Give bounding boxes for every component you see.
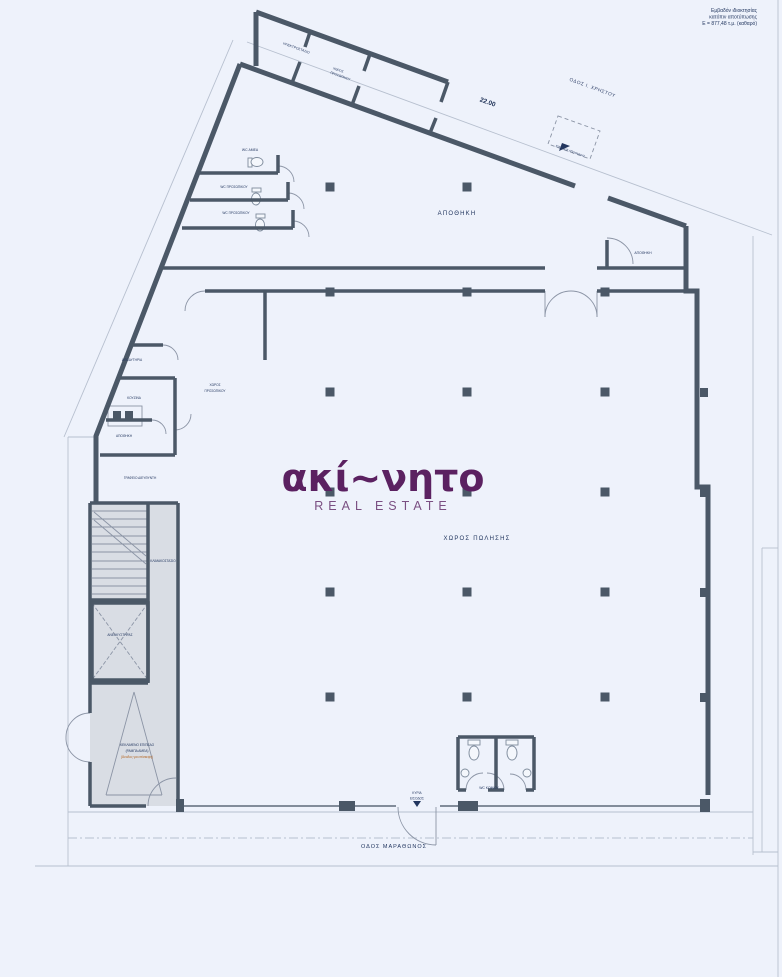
main-entrance-label-2: ΕΙΣΟΔΟΣ — [410, 797, 424, 801]
main-entrance-arrow — [413, 801, 421, 807]
structural-columns — [326, 183, 709, 703]
site-note-line2: κατόπιν αποτύπωσης — [709, 14, 757, 21]
room-label-staff-left-2: ΠΡΟΣΩΠΙΚΟΥ — [205, 389, 227, 393]
room-label-kitchen: ΚΟΥΖΙΝΑ — [127, 396, 142, 400]
room-label-staircase: ΚΛΙΜΑΚΟΣΤΑΣΙΟ — [150, 559, 176, 563]
room-label-wc-public: WC ΚΟΙΝΟΥ — [479, 786, 499, 790]
room-label-wc-staff-1: WC ΠΡΟΣΩΠΙΚΟΥ — [220, 185, 248, 189]
room-label-changing: ΑΠΟΔΥΤΗΡΙΑ — [122, 358, 143, 362]
room-label-wc-accessible: WC ΑΜΕΑ — [242, 148, 259, 152]
room-label-elevator: ΑΝΕΛΚΥΣΤΗΡΑΣ — [107, 633, 132, 637]
street-label-bottom: ΟΔΟΣ ΜΑΡΑΘΩΝΟΣ — [361, 844, 427, 850]
core-block-fill — [90, 503, 178, 806]
room-label-storage-top-right: ΑΠΟΘΗΚΗ — [634, 251, 652, 255]
room-label-staff-left-1: ΧΩΡΟΣ — [209, 383, 220, 387]
watermark-subtitle: REAL ESTATE — [314, 499, 451, 513]
site-note-line1: Εμβαδόν ιδιοκτησίας — [711, 7, 758, 14]
room-label-storage-left: ΑΠΟΘΗΚΗ — [116, 434, 133, 438]
walls-inner — [90, 32, 686, 806]
main-entrance-label-1: ΚΥΡΙΑ — [412, 791, 422, 795]
site-note-line3: Ε = 877,48 τ.μ. (καθαρό) — [702, 20, 757, 27]
warehouse-entrance-label: ΕΙΣΟΔΟΣ ΑΠΟΘΗΚΗΣ — [555, 144, 585, 158]
dimension-top-wall: 22.00 — [479, 97, 497, 109]
watermark-brand: ακί~νητο — [281, 456, 484, 500]
room-label-wc-staff-2: WC ΠΡΟΣΩΠΙΚΟΥ — [222, 211, 250, 215]
floor-plan-drawing: Εμβαδόν ιδιοκτησίας κατόπιν αποτύπωσης Ε… — [0, 0, 782, 977]
ramp-note-line1: ΚΕΚΛΙΜΕΝΟ ΕΠΙΠΕΔΟ — [120, 743, 155, 747]
room-label-warehouse: ΑΠΟΘΗΚΗ — [438, 211, 477, 217]
room-label-managers-office: ΓΡΑΦΕΙΟ ΔΙΕΥΘΥΝΤΗ — [124, 476, 157, 480]
walls-outer — [96, 12, 708, 795]
ramp-note-line3: (Άνοδος για επίσκεψη) — [121, 755, 153, 759]
ramp-note-line2: (ΡΑΜΠΑ ΑΜΕΑ) — [126, 749, 149, 753]
street-label-top: ΟΔΟΣ Ι. ΧΡΗΣΤΟΥ — [568, 77, 616, 99]
room-label-sales: ΧΩΡΟΣ ΠΩΛΗΣΗΣ — [443, 536, 510, 542]
